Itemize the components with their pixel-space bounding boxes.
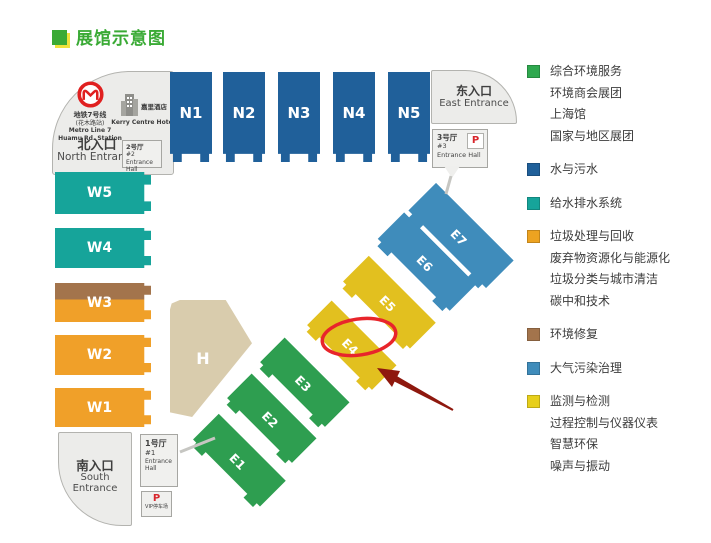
legend-item: 上海馆 [550, 104, 634, 126]
legend: 综合环境服务 环境商会展团 上海馆 国家与地区展团 水与污水 给水排水系统 垃圾… [527, 61, 711, 489]
hall-w1: W1 [55, 388, 151, 427]
metro-logo-icon [77, 81, 104, 108]
east-entrance-label-cn: 东入口 [432, 82, 516, 99]
legend-item: 综合环境服务 [550, 61, 634, 83]
legend-swatch [527, 65, 540, 78]
vip-parking-icon: P [142, 494, 171, 504]
hall1-name-cn: 1号厅 [145, 439, 177, 449]
legend-item: 过程控制与仪器仪表 [550, 413, 658, 435]
hall-n3: N3 [278, 72, 320, 162]
hall-w4: W4 [55, 228, 151, 268]
legend-group: 大气污染治理 [527, 358, 711, 380]
hall3-name-en: Entrance Hall [437, 151, 487, 159]
entrance-hall-2-box: 2号厅 #2 Entrance Hall [122, 140, 162, 168]
legend-item: 环境修复 [550, 324, 598, 346]
east-entrance-label-en: East Entrance [432, 98, 516, 109]
page-title: 展馆示意图 [76, 24, 166, 49]
hall3-pointer [444, 166, 460, 178]
legend-item: 监测与检测 [550, 391, 658, 413]
legend-swatch [527, 163, 540, 176]
legend-group: 监测与检测 过程控制与仪器仪表 智慧环保 噪声与振动 [527, 391, 711, 477]
legend-item: 给水排水系统 [550, 193, 622, 215]
hall2-name-cn: 2号厅 [126, 143, 161, 151]
entrance-hall-1-box: 1号厅 #1 Entrance Hall [140, 434, 178, 487]
legend-group: 给水排水系统 [527, 193, 711, 215]
highlight-arrow-icon [377, 368, 454, 411]
legend-swatch [527, 328, 540, 341]
legend-group: 环境修复 [527, 324, 711, 346]
hall-n5: N5 [388, 72, 430, 162]
hotel-name-cn: 嘉里酒店 [141, 101, 167, 111]
legend-item: 国家与地区展团 [550, 126, 634, 148]
south-entrance-area: 南入口 South Entrance [58, 432, 132, 526]
connector-line-east [446, 176, 451, 194]
hall-n4: N4 [333, 72, 375, 162]
legend-item: 智慧环保 [550, 434, 658, 456]
legend-item: 废弃物资源化与能源化 [550, 248, 670, 270]
hall-n2: N2 [223, 72, 265, 162]
south-entrance-label-en: South Entrance [59, 472, 131, 494]
entrance-hall-3-box: 3号厅 #3 Entrance Hall P [432, 129, 488, 168]
vip-parking-box: P VIP停车场 [141, 491, 172, 517]
legend-item: 环境商会展团 [550, 83, 634, 105]
vip-parking-label: VIP停车场 [142, 504, 171, 510]
legend-item: 垃圾处理与回收 [550, 226, 670, 248]
legend-group: 水与污水 [527, 159, 711, 181]
hotel-name-en: Kerry Centre Hotel [111, 119, 175, 126]
legend-group: 综合环境服务 环境商会展团 上海馆 国家与地区展团 [527, 61, 711, 147]
legend-item: 垃圾分类与城市清洁 [550, 269, 670, 291]
legend-item: 水与污水 [550, 159, 598, 181]
legend-group: 垃圾处理与回收 废弃物资源化与能源化 垃圾分类与城市清洁 碳中和技术 [527, 226, 711, 312]
legend-swatch [527, 197, 540, 210]
hall-w5: W5 [55, 172, 151, 214]
hall-n1: N1 [170, 72, 212, 162]
legend-swatch [527, 362, 540, 375]
legend-item: 大气污染治理 [550, 358, 622, 380]
legend-swatch [527, 230, 540, 243]
parking-icon: P [467, 133, 484, 149]
hall-w2: W2 [55, 335, 151, 375]
east-entrance-area: 东入口 East Entrance [431, 70, 517, 124]
hall-w3: W3 [55, 283, 151, 322]
exhibition-map: 展馆示意图 地铁7号线 (花木路站) Metro Line 7 Huamu Rd… [0, 0, 711, 543]
hall2-number: #2 [126, 151, 161, 159]
hall-h-label: H [196, 349, 209, 368]
hall1-name-en: Entrance Hall [145, 458, 177, 473]
legend-item: 碳中和技术 [550, 291, 670, 313]
legend-swatch [527, 395, 540, 408]
title-bullet-icon [52, 30, 67, 45]
legend-item: 噪声与振动 [550, 456, 658, 478]
hall1-number: #1 [145, 449, 177, 458]
hall2-name-en: Entrance Hall [126, 159, 161, 174]
